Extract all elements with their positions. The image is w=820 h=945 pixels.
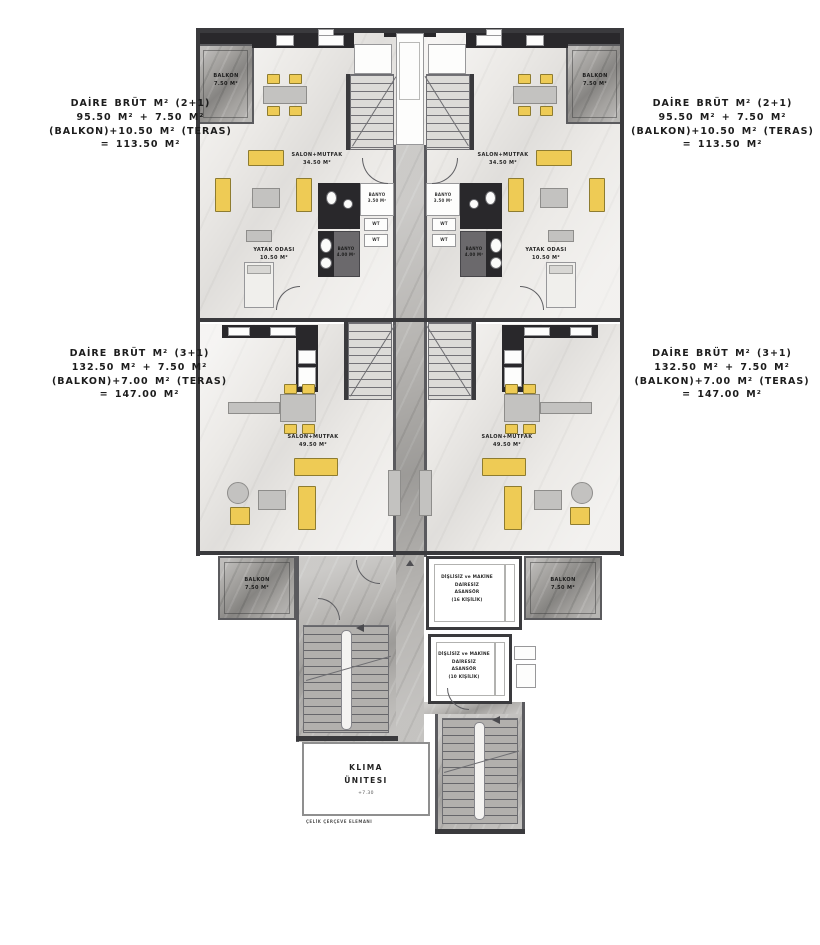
shaft-box xyxy=(516,664,536,688)
annotation-3plus1-right: DAİRE BRÜT M² (3+1) 132.50 M² + 7.50 M² … xyxy=(616,347,820,402)
sofa xyxy=(298,486,316,530)
elevator-guide xyxy=(505,564,515,622)
kitchen-appliance xyxy=(504,350,522,364)
banyo-small-left-label: BANYO 3.50 M² xyxy=(361,192,393,204)
balcony-top-right-label: BALKON 7.50 M² xyxy=(568,72,622,88)
stair-direction-arrow xyxy=(492,716,500,724)
spot-elevation-marker xyxy=(406,560,414,566)
kitchen-stove xyxy=(570,327,592,336)
wall-outer-bottom xyxy=(200,551,620,555)
dining-table xyxy=(280,394,316,422)
armchair xyxy=(296,178,312,212)
dining-chair xyxy=(289,106,302,116)
coffee-table xyxy=(540,188,568,208)
dining-chair xyxy=(505,384,518,394)
wall xyxy=(435,829,525,834)
kitchen-stove xyxy=(318,35,344,46)
elevator-guide xyxy=(495,642,505,696)
kitchen-stove xyxy=(476,35,502,46)
sideboard xyxy=(540,402,592,414)
elevator-10-label: DİŞLİSİZ ve MAKİNE DAİRESİZ ASANSÖR (10 … xyxy=(433,651,495,682)
kitchen-appliance xyxy=(298,350,316,364)
elevator-16-label: DİŞLİSİZ ve MAKİNE DAİRESİZ ASANSÖR (16 … xyxy=(432,574,502,605)
sink-icon xyxy=(469,199,479,209)
klima-level-label: +7.30 xyxy=(358,791,374,796)
kitchen-counter-return xyxy=(354,44,392,74)
washer-label: WT xyxy=(364,237,388,243)
wall xyxy=(472,322,476,400)
dining-chair xyxy=(523,384,536,394)
dining-chair xyxy=(302,384,315,394)
kitchen-sink xyxy=(526,35,544,46)
dining-table xyxy=(513,86,557,104)
coffee-table xyxy=(258,490,286,510)
balcony-bottom-right-label: BALKON 7.50 M² xyxy=(528,576,598,592)
washer-label: WT xyxy=(432,237,456,243)
salon-2plus1-right-label: SALON+MUTFAK 34.50 M² xyxy=(458,151,548,167)
sofa xyxy=(482,458,526,476)
floor-plan: DAİRE BRÜT M² (2+1) 95.50 M² + 7.50 M² (… xyxy=(0,0,820,945)
sink-icon xyxy=(320,257,332,269)
toilet-icon xyxy=(326,191,337,205)
armchair xyxy=(230,507,250,525)
stair-stringer xyxy=(341,630,352,730)
salon-3plus1-right-label: SALON+MUTFAK 49.50 M² xyxy=(462,433,552,449)
washer-label: WT xyxy=(364,221,388,227)
kitchen-sink xyxy=(276,35,294,46)
banyo-big-left-label: BANYO 4.00 M² xyxy=(332,246,360,258)
dining-chair xyxy=(267,74,280,84)
washer-label: WT xyxy=(432,221,456,227)
sideboard xyxy=(228,402,280,414)
dining-table xyxy=(504,394,540,422)
armchair xyxy=(570,507,590,525)
dining-chair xyxy=(284,384,297,394)
wall xyxy=(296,556,299,742)
round-table xyxy=(227,482,249,504)
tv-unit xyxy=(419,470,432,516)
dining-chair xyxy=(289,74,302,84)
yatak-right-label: YATAK ODASI 10.50 M² xyxy=(512,246,580,262)
wall xyxy=(470,74,474,150)
round-table xyxy=(571,482,593,504)
wardrobe xyxy=(548,230,574,242)
dining-chair xyxy=(267,106,280,116)
toilet-icon xyxy=(320,238,332,253)
dining-chair xyxy=(518,74,531,84)
armchair xyxy=(508,178,524,212)
central-corridor xyxy=(396,145,424,742)
stair-direction-arrow xyxy=(356,624,364,632)
banyo-big-right-label: BANYO 4.00 M² xyxy=(460,246,488,258)
dining-chair xyxy=(518,106,531,116)
wall xyxy=(296,736,398,741)
kitchen-sink xyxy=(270,327,296,336)
wall xyxy=(435,714,438,832)
sofa xyxy=(589,178,605,212)
bed-pillow xyxy=(247,265,271,274)
annotation-2plus1-right: DAİRE BRÜT M² (2+1) 95.50 M² + 7.50 M² (… xyxy=(620,97,820,152)
wall xyxy=(522,702,525,832)
coffee-table xyxy=(252,188,280,208)
bathroom-dark-left xyxy=(318,183,360,229)
dining-chair xyxy=(540,74,553,84)
sink-icon xyxy=(343,199,353,209)
salon-2plus1-left-label: SALON+MUTFAK 34.50 M² xyxy=(272,151,362,167)
sofa xyxy=(504,486,522,530)
salon-3plus1-left-label: SALON+MUTFAK 49.50 M² xyxy=(268,433,358,449)
bed-pillow xyxy=(549,265,573,274)
yatak-left-label: YATAK ODASI 10.50 M² xyxy=(240,246,308,262)
sink-icon xyxy=(490,257,502,269)
shaft-box xyxy=(514,646,536,660)
steel-frame-note: ÇELİK ÇERÇEVE ELEMANI xyxy=(306,819,372,824)
toilet-icon xyxy=(490,238,502,253)
coffee-table xyxy=(534,490,562,510)
kitchen-sink xyxy=(524,327,550,336)
banyo-small-right-label: BANYO 3.50 M² xyxy=(427,192,459,204)
klima-label: KLIMA ÜNITESI xyxy=(344,762,387,788)
wall-mid-separator xyxy=(200,318,620,322)
balcony-top-left-label: BALKON 7.50 M² xyxy=(199,72,253,88)
central-shaft-duct xyxy=(399,42,420,100)
sofa xyxy=(294,458,338,476)
dining-chair xyxy=(540,106,553,116)
balcony-bottom-left-label: BALKON 7.50 M² xyxy=(222,576,292,592)
kitchen-stove xyxy=(228,327,250,336)
sofa xyxy=(215,178,231,212)
stair-stringer xyxy=(474,722,485,820)
annotation-3plus1-left: DAİRE BRÜT M² (3+1) 132.50 M² + 7.50 M² … xyxy=(32,347,247,402)
bathroom-dark-right xyxy=(460,183,502,229)
dining-table xyxy=(263,86,307,104)
tv-unit xyxy=(388,470,401,516)
toilet-icon xyxy=(485,191,496,205)
kitchen-counter-return xyxy=(428,44,466,74)
klima-unit-area: KLIMA ÜNITESI +7.30 xyxy=(302,742,430,816)
wardrobe xyxy=(246,230,272,242)
annotation-2plus1-left: DAİRE BRÜT M² (2+1) 95.50 M² + 7.50 M² (… xyxy=(38,97,243,152)
